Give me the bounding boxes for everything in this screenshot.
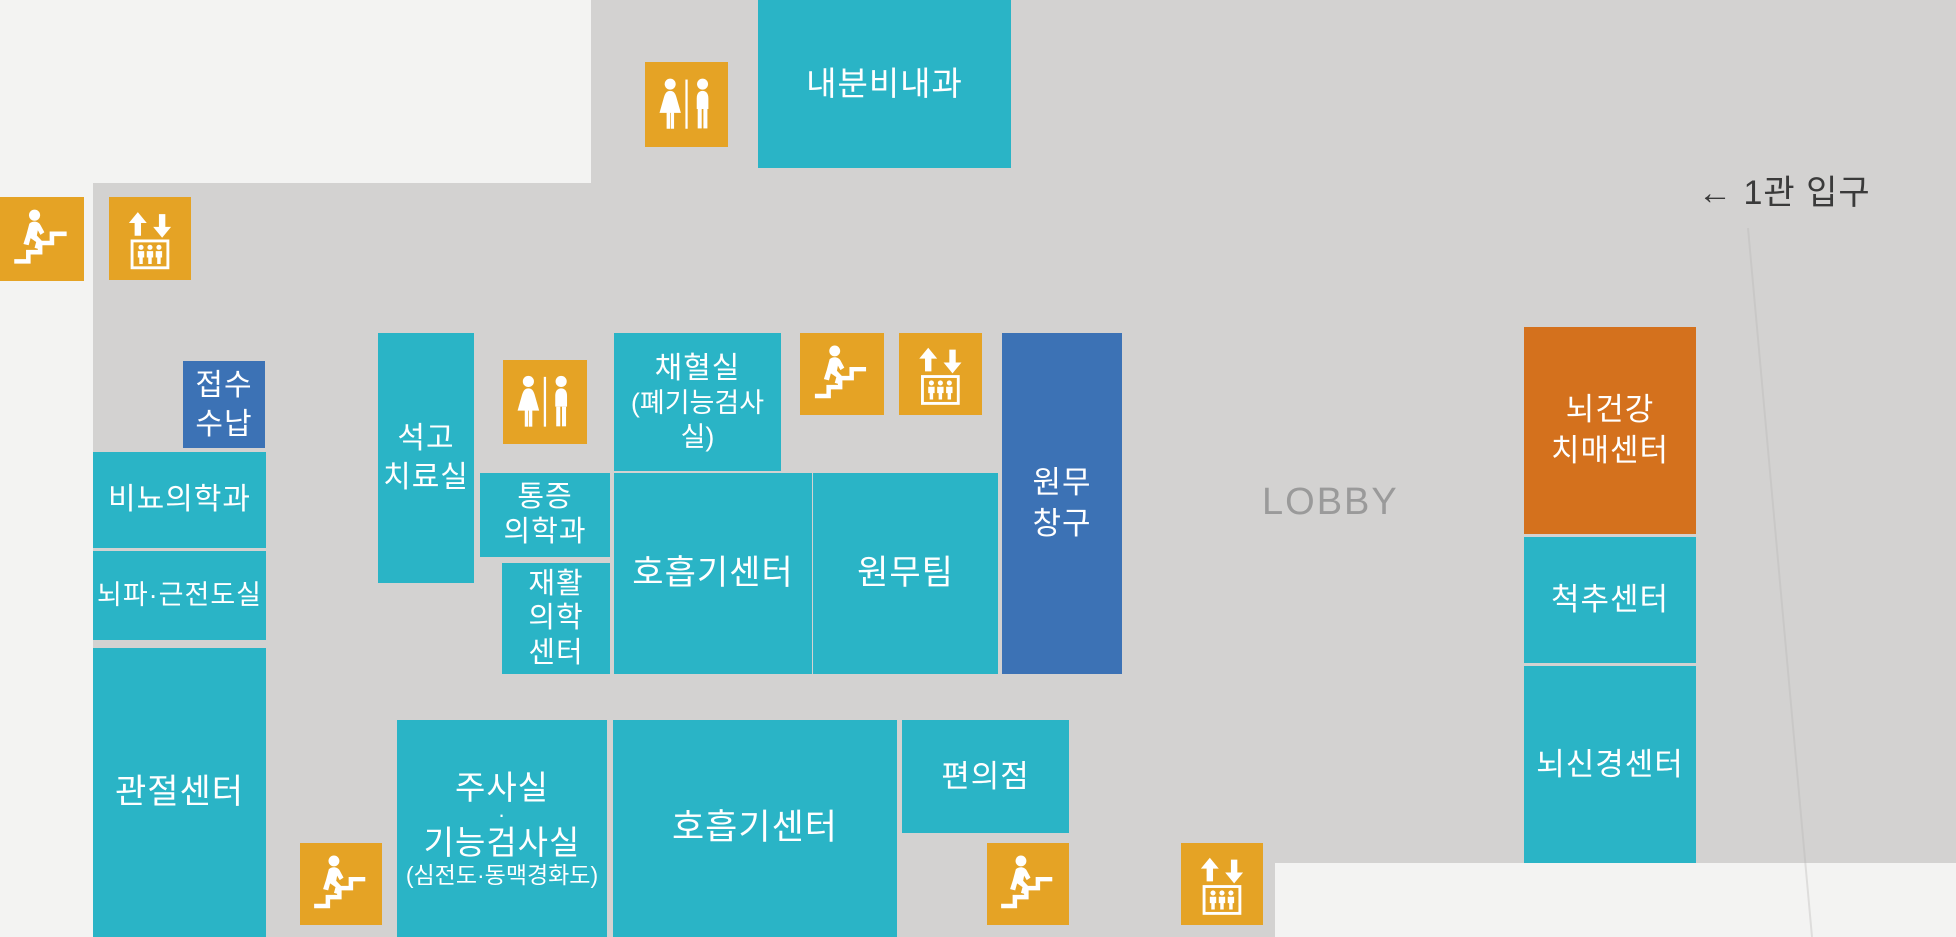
room-label: 원무 xyxy=(1032,463,1091,503)
floor-plan: LOBBY ← 1관 입구 내분비내과 접수 수납 비뇨의학과 뇌파·근전도실 … xyxy=(0,0,1956,937)
room-brain-dementia-center: 뇌건강 치매센터 xyxy=(1524,327,1696,534)
room-label: 내분비내과 xyxy=(806,64,963,104)
room-label: 채혈실 xyxy=(655,350,741,388)
elevator-icon-glyph xyxy=(118,206,182,271)
room-respiratory-center-upper: 호흡기센터 xyxy=(614,473,812,674)
room-reception-payment: 접수 수납 xyxy=(183,361,265,448)
room-respiratory-center-lower: 호흡기센터 xyxy=(613,720,897,937)
room-label: 센터 xyxy=(528,636,583,670)
room-urology: 비뇨의학과 xyxy=(93,452,266,548)
room-label: 수납 xyxy=(195,405,252,444)
elevator-icon-glyph xyxy=(1190,852,1254,916)
room-label: 비뇨의학과 xyxy=(108,482,251,519)
entrance-direction-label: ← 1관 입구 xyxy=(1698,165,1871,214)
room-endocrinology: 내분비내과 xyxy=(758,0,1011,168)
floor-cutout-bottom-right xyxy=(1275,863,1956,937)
stairs-icon xyxy=(800,333,884,415)
elevator-icon xyxy=(1181,843,1263,925)
room-blood-collection: 채혈실 (폐기능검사실) xyxy=(614,333,781,471)
room-label: 뇌건강 xyxy=(1566,390,1655,430)
room-label: 의학 xyxy=(528,601,583,635)
restroom-icon xyxy=(645,62,728,147)
room-label: 편의점 xyxy=(941,758,1030,796)
stairs-icon-glyph xyxy=(996,852,1060,916)
room-spine-center: 척추센터 xyxy=(1524,537,1696,663)
room-sublabel: (심전도·동맥경화도) xyxy=(406,862,598,888)
room-label: 창구 xyxy=(1032,504,1091,544)
stairs-icon-glyph xyxy=(9,206,75,272)
room-label-separator: · xyxy=(498,806,506,824)
stairs-icon xyxy=(0,197,84,281)
room-label: 의학과 xyxy=(503,515,586,550)
room-injection-function-test: 주사실 · 기능검사실 (심전도·동맥경화도) xyxy=(397,720,607,937)
room-cast-treatment: 석고 치료실 xyxy=(378,333,474,583)
room-label: 재활 xyxy=(528,567,583,601)
room-admin-team: 원무팀 xyxy=(813,473,998,674)
lobby-label: LOBBY xyxy=(1262,481,1399,524)
restroom-icon-glyph xyxy=(654,71,719,137)
room-joint-center: 관절센터 xyxy=(93,648,266,937)
room-label: 주사실 xyxy=(455,769,549,807)
room-label: 척추센터 xyxy=(1551,581,1669,619)
restroom-icon xyxy=(503,360,587,444)
room-label: 호흡기센터 xyxy=(632,553,793,594)
room-label: 호흡기센터 xyxy=(672,807,838,850)
room-label: 통증 xyxy=(517,480,572,515)
room-label: 치매센터 xyxy=(1551,431,1669,471)
room-label: 관절센터 xyxy=(115,772,244,813)
room-pain-medicine: 통증 의학과 xyxy=(480,473,610,557)
room-eeg-emg: 뇌파·근전도실 xyxy=(93,551,266,640)
elevator-icon xyxy=(109,197,191,280)
room-label: 기능검사실 xyxy=(424,824,581,862)
stairs-icon xyxy=(300,843,382,925)
room-label: 치료실 xyxy=(383,458,469,497)
room-label: 뇌신경센터 xyxy=(1536,746,1684,784)
stairs-icon-glyph xyxy=(309,852,373,916)
room-label: 접수 xyxy=(195,366,252,405)
room-label: 뇌파·근전도실 xyxy=(97,579,262,612)
elevator-icon-glyph xyxy=(908,342,973,406)
room-rehab-center: 재활 의학 센터 xyxy=(502,563,610,674)
stairs-icon xyxy=(987,843,1069,925)
room-neuro-center: 뇌신경센터 xyxy=(1524,666,1696,863)
room-label: 원무팀 xyxy=(857,553,954,594)
stairs-icon-glyph xyxy=(809,342,875,406)
restroom-icon-glyph xyxy=(512,369,578,435)
room-label: 석고 xyxy=(397,419,454,458)
elevator-icon xyxy=(899,333,982,415)
room-sublabel: (폐기능검사실) xyxy=(614,387,781,455)
room-convenience-store: 편의점 xyxy=(902,720,1069,833)
room-admin-windows: 원무 창구 xyxy=(1002,333,1122,674)
